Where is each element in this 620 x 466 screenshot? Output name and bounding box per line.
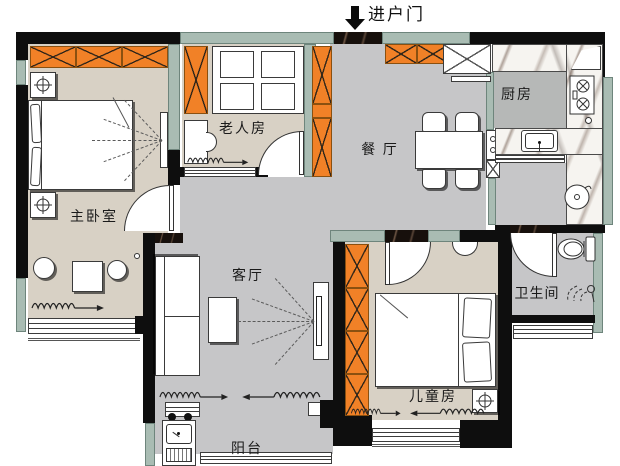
elder-window <box>184 167 256 177</box>
wall <box>16 32 180 44</box>
wall <box>498 233 512 423</box>
master-door-leaf <box>169 185 174 231</box>
wall <box>168 167 184 177</box>
wall <box>16 32 28 60</box>
dining-chair <box>455 112 479 132</box>
dining-label: 餐 厅 <box>348 139 412 159</box>
pillow <box>30 147 42 186</box>
entry-arrow-head-icon <box>345 19 365 30</box>
window-wall <box>16 278 26 332</box>
wall <box>510 315 595 323</box>
wall <box>470 32 605 44</box>
faucet-icon <box>539 144 540 152</box>
toilet-icon <box>555 234 597 264</box>
shower-icon <box>560 280 600 314</box>
master-door-threshold <box>155 233 183 243</box>
tatami-panel <box>220 83 254 110</box>
dining-cabinet <box>312 46 332 104</box>
lamp-icon <box>34 76 52 94</box>
master-bed <box>28 100 133 190</box>
window-wall <box>168 44 180 150</box>
fridge <box>443 44 491 74</box>
tatami-panel <box>220 51 254 78</box>
kids-door-threshold <box>385 230 428 242</box>
master-wardrobe <box>30 46 76 68</box>
floor-plan: 进户门 <box>0 0 620 466</box>
balcony-label: 阳台 <box>224 438 270 458</box>
master-window <box>28 318 140 334</box>
elder-room-label: 老人房 <box>213 118 273 138</box>
living-room-label: 客厅 <box>225 265 271 285</box>
window-wall <box>16 60 26 85</box>
coffee-table <box>208 297 237 343</box>
pillow <box>462 341 492 382</box>
entry-threshold <box>334 32 382 44</box>
dining-chair <box>455 169 479 189</box>
window-wall <box>428 230 460 242</box>
sight-line <box>92 140 162 141</box>
sofa-cushion-line <box>165 316 200 317</box>
curtain-icon <box>30 298 106 313</box>
wall <box>333 415 372 446</box>
curtain-icon <box>158 387 230 402</box>
dining-cabinet <box>312 118 332 177</box>
kids-door-leaf <box>385 242 390 285</box>
wall <box>16 85 28 278</box>
bathroom-label: 卫生间 <box>506 283 568 303</box>
window-wall <box>330 230 385 242</box>
window-sill <box>372 444 460 447</box>
tv <box>316 296 322 346</box>
dining-chair <box>422 112 446 132</box>
kitchen-pass-window <box>495 155 565 163</box>
bath-door-threshold <box>510 225 550 233</box>
kids-wardrobe <box>345 244 369 288</box>
elder-wardrobe <box>184 46 208 114</box>
curtain-icon <box>240 387 322 402</box>
pillow <box>30 104 42 143</box>
entry-annotation: 进户门 <box>340 0 470 32</box>
gas-valve-icon <box>585 117 592 124</box>
kids-wardrobe <box>345 288 369 331</box>
kids-window <box>372 428 460 442</box>
window-sill <box>28 338 140 341</box>
kids-wardrobe <box>345 331 369 374</box>
tatami-panel <box>261 83 295 110</box>
master-wardrobe <box>76 46 122 68</box>
wall <box>143 233 155 423</box>
window-wall <box>382 32 470 44</box>
kids-room-label: 儿童房 <box>403 386 463 406</box>
dining-table <box>415 131 483 169</box>
master-bedroom-label: 主卧室 <box>58 206 130 226</box>
washing-machine-icon <box>562 180 594 212</box>
pillow <box>462 297 492 338</box>
wall <box>460 420 512 448</box>
elder-door-leaf <box>299 131 304 175</box>
entry-arrow-icon <box>351 6 359 19</box>
window-wall <box>145 423 155 466</box>
window-wall <box>603 77 613 225</box>
wall <box>333 242 345 420</box>
tatami-panel <box>261 51 295 78</box>
dining-cabinet <box>312 104 332 118</box>
drain-board <box>166 448 192 462</box>
curtain-icon <box>408 404 486 418</box>
master-wardrobe <box>122 46 168 68</box>
stool <box>107 260 127 280</box>
sofa-back <box>155 256 165 376</box>
wall <box>460 230 498 242</box>
window-wall <box>488 178 496 225</box>
entry-label: 进户门 <box>368 0 425 25</box>
stool <box>33 257 55 279</box>
door-stop-icon <box>134 253 140 259</box>
bath-window <box>513 325 593 339</box>
fridge-ledge <box>451 76 491 82</box>
shoe-cabinet <box>385 44 417 64</box>
curtain-icon <box>350 404 402 418</box>
dressing-table <box>72 261 103 292</box>
window-wall <box>180 32 334 44</box>
lamp-icon <box>34 196 52 214</box>
hallway-floor <box>180 177 334 233</box>
dining-chair <box>422 169 446 189</box>
sight-line <box>238 321 314 322</box>
kitchen-label: 厨房 <box>494 84 540 104</box>
curtain-icon <box>186 153 250 167</box>
stove-icon <box>569 75 595 115</box>
